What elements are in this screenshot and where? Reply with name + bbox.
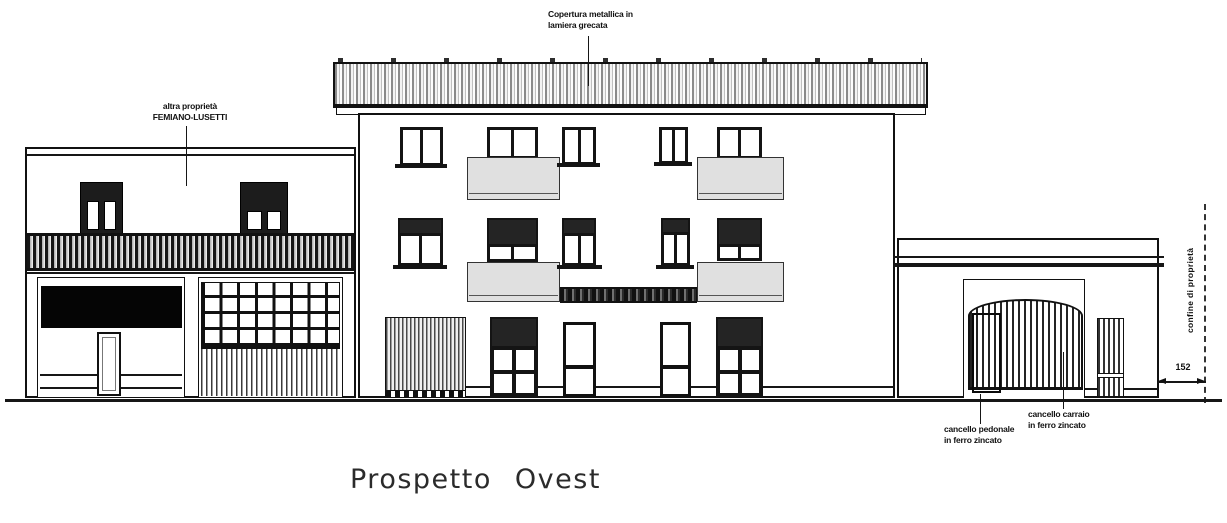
storefront-signage-band <box>41 286 182 328</box>
roller-shutter-box <box>663 220 688 232</box>
drawing-title: Prospetto Ovest <box>350 464 601 495</box>
window-pane <box>267 211 282 230</box>
driveway-gate-note-line1: cancello carraio <box>1028 409 1118 420</box>
dimension-arrow-right <box>1197 378 1205 384</box>
window-sill <box>557 265 602 269</box>
roller-shutter-box <box>489 220 536 244</box>
door-ground-1 <box>563 322 596 397</box>
window-top-2 <box>562 127 596 165</box>
window-mid-2 <box>562 218 596 266</box>
left-shuttered-window-1 <box>80 182 123 234</box>
window-mid-1 <box>398 218 443 266</box>
roof-note-leader-line <box>588 36 589 86</box>
balcony2-mid-parapet <box>697 262 784 302</box>
roof-note-line2: lamiera grecata <box>548 20 678 31</box>
balcony1-mid-window <box>487 218 538 262</box>
window-sill <box>395 164 447 168</box>
ground-line <box>5 399 1222 402</box>
dimension-value: 152 <box>1162 362 1204 372</box>
storefront-door <box>97 332 121 396</box>
window-ground-1 <box>490 317 538 397</box>
window-sill <box>557 163 600 167</box>
left-floor-line <box>27 272 354 274</box>
storefront-transom-line <box>40 374 97 376</box>
side-gate-mid-rail <box>1098 373 1123 378</box>
left-balcony-railing <box>27 233 354 271</box>
roller-shutter-box <box>718 319 761 346</box>
property-boundary-dashed-line <box>1204 204 1206 403</box>
left-shuttered-window-2 <box>240 182 288 234</box>
roller-shutter-box <box>400 220 441 233</box>
window-sill <box>393 265 447 269</box>
roller-shutter-box <box>719 220 760 244</box>
window-sill <box>654 162 692 166</box>
door-ground-2 <box>660 322 691 397</box>
storefront-kick-line <box>120 387 182 389</box>
left-building-parapet-line <box>27 154 354 156</box>
storefront-kick-line <box>40 387 97 389</box>
balcony1-top-parapet <box>467 157 560 200</box>
ground-louver-screen <box>385 317 466 398</box>
window-sill <box>656 265 694 269</box>
garage-door-glazed-grid <box>201 282 340 347</box>
window-pane <box>247 211 262 230</box>
storefront-transom-line <box>120 374 182 376</box>
garage-door-louvers <box>201 347 340 396</box>
balcony2-mid-window <box>717 218 762 261</box>
neighbor-property-note: altra proprietà FEMIANO-LUSETTI <box>132 101 248 122</box>
pedestrian-gate-note-line2: in ferro zincato <box>944 435 1034 446</box>
storefront-door-inner-frame <box>102 337 116 391</box>
neighbor-note-line1: altra proprietà <box>132 101 248 112</box>
window-ground-2 <box>716 317 763 397</box>
courtyard-cornice-band <box>893 263 1164 267</box>
courtyard-cornice-line <box>893 256 1164 258</box>
balcony2-top-window <box>717 127 762 159</box>
balcony2-top-parapet <box>697 157 784 200</box>
property-boundary-note: confine di proprietà <box>1185 213 1195 333</box>
pedestrian-gate <box>972 313 1001 393</box>
roof-note-line1: Copertura metallica in <box>548 9 678 20</box>
driveway-gate-note: cancello carraio in ferro zincato <box>1028 409 1118 430</box>
window-pane <box>104 201 116 230</box>
roof-note: Copertura metallica in lamiera grecata <box>548 9 678 30</box>
elevation-drawing-sheet: Copertura metallica in lamiera grecata a… <box>0 0 1227 523</box>
window-top-1 <box>400 127 443 166</box>
louver-screen-base <box>386 390 465 397</box>
neighbor-note-line2: FEMIANO-LUSETTI <box>132 112 248 123</box>
pedestrian-gate-note: cancello pedonale in ferro zincato <box>944 424 1034 445</box>
small-side-gate <box>1097 318 1124 397</box>
mid-balcony-railing <box>560 287 697 303</box>
balcony1-top-window <box>487 127 538 159</box>
balcony1-mid-parapet <box>467 262 560 302</box>
window-top-3 <box>659 127 688 164</box>
window-pane <box>87 201 99 230</box>
neighbor-note-leader-line <box>186 126 187 186</box>
dimension-arrow-left <box>1158 378 1166 384</box>
roller-shutter-box <box>564 220 594 233</box>
pedestrian-gate-note-line1: cancello pedonale <box>944 424 1034 435</box>
corrugated-metal-roof <box>333 62 928 108</box>
window-mid-3 <box>661 218 690 266</box>
roller-shutter-box <box>492 319 536 346</box>
driveway-gate-note-line2: in ferro zincato <box>1028 420 1118 431</box>
